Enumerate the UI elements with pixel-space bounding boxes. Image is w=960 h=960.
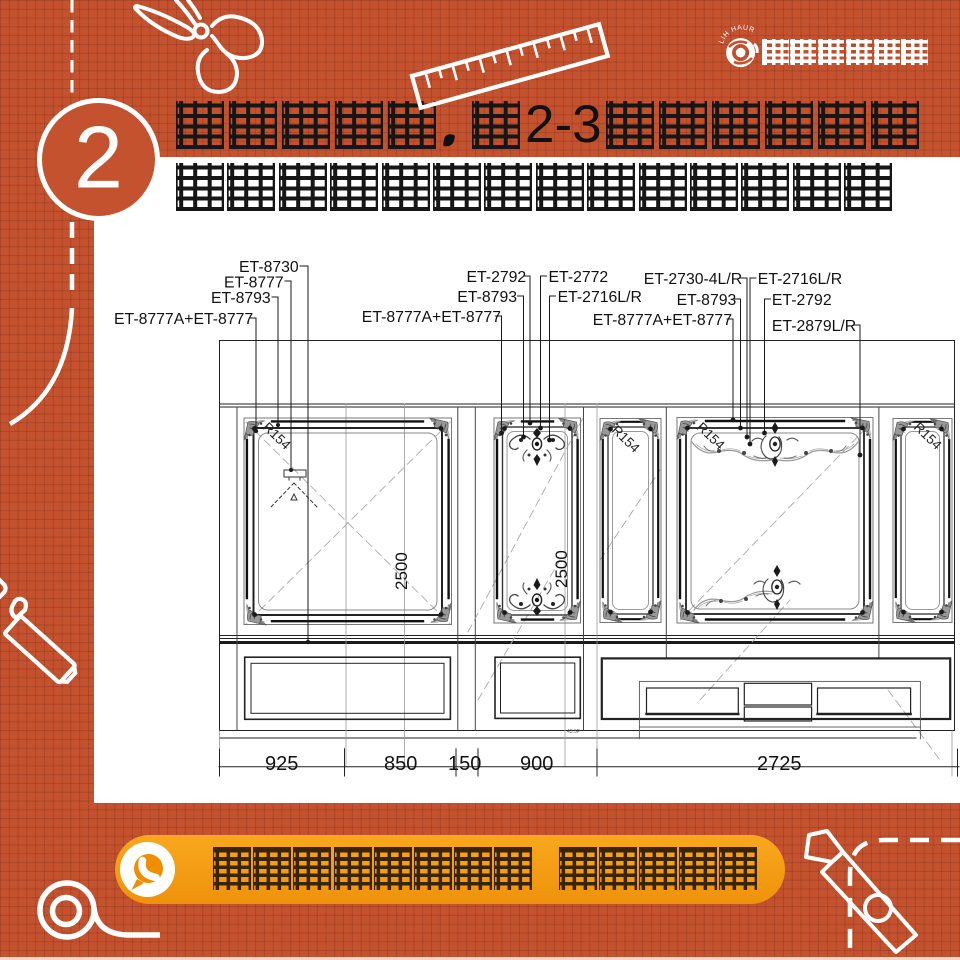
svg-text:43.5P: 43.5P [567,729,581,735]
svg-text:R154: R154 [260,419,294,453]
svg-text:2500: 2500 [392,552,411,590]
svg-text:ET-2792: ET-2792 [467,269,527,286]
svg-text:ET-2716L/R: ET-2716L/R [758,271,842,288]
svg-text:ET-8793: ET-8793 [457,289,517,306]
svg-text:ET-2879L/R: ET-2879L/R [772,318,856,335]
svg-text:ET-8793: ET-8793 [211,290,271,307]
svg-text:2725: 2725 [757,753,802,775]
svg-text:ET-8730: ET-8730 [239,259,299,276]
svg-text:ET-8777A+ET-8777: ET-8777A+ET-8777 [593,312,732,329]
svg-text:150: 150 [448,753,481,775]
svg-text:900: 900 [520,753,553,775]
svg-text:ET-2716L/R: ET-2716L/R [558,289,642,306]
svg-text:ET-8777: ET-8777 [224,275,284,292]
svg-text:ET-2730-4L/R: ET-2730-4L/R [644,271,742,288]
svg-text:ET-2772: ET-2772 [549,269,609,286]
svg-text:ET-2792: ET-2792 [772,292,832,309]
svg-text:ET-8777A+ET-8777: ET-8777A+ET-8777 [114,311,253,328]
svg-text:ET-8777A+ET-8777: ET-8777A+ET-8777 [362,309,501,326]
svg-text:ET-8793: ET-8793 [677,292,737,309]
svg-text:925: 925 [265,753,298,775]
svg-text:850: 850 [384,753,417,775]
svg-text:2500: 2500 [552,550,571,588]
svg-text:R154: R154 [694,419,728,453]
